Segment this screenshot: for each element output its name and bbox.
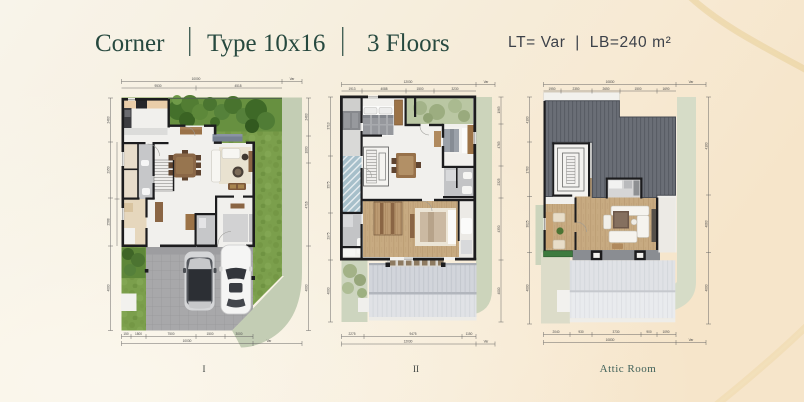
svg-text:10830: 10830 — [606, 80, 615, 84]
svg-text:10030: 10030 — [183, 339, 192, 343]
svg-text:2588: 2588 — [106, 218, 110, 225]
svg-text:12030: 12030 — [404, 80, 413, 84]
svg-text:4100: 4100 — [525, 116, 529, 123]
svg-text:1690: 1690 — [662, 87, 669, 91]
svg-text:4100: 4100 — [704, 142, 708, 149]
svg-text:1000: 1000 — [304, 146, 308, 153]
svg-text:1090: 1090 — [662, 330, 669, 334]
svg-text:1150: 1150 — [466, 332, 473, 336]
svg-text:1500: 1500 — [416, 87, 423, 91]
svg-text:4000: 4000 — [525, 284, 529, 291]
svg-text:3025: 3025 — [525, 220, 529, 227]
svg-text:2325: 2325 — [497, 178, 501, 185]
svg-text:1950: 1950 — [548, 87, 555, 91]
svg-text:Type 10x16: Type 10x16 — [207, 30, 325, 57]
svg-text:2950: 2950 — [106, 166, 110, 173]
svg-text:I: I — [203, 364, 206, 374]
svg-text:Corner: Corner — [95, 30, 165, 57]
svg-text:2650: 2650 — [602, 87, 609, 91]
svg-text:Attic Room: Attic Room — [600, 363, 657, 375]
svg-text:9475: 9475 — [409, 332, 416, 336]
svg-text:4000: 4000 — [106, 284, 110, 291]
svg-text:10000: 10000 — [192, 77, 201, 81]
svg-text:1500: 1500 — [206, 332, 213, 336]
svg-text:1800: 1800 — [135, 332, 142, 336]
svg-text:2275: 2275 — [348, 332, 355, 336]
svg-text:LT= Var | LB=240 m²: LT= Var | LB=240 m² — [508, 34, 671, 51]
svg-text:7500: 7500 — [167, 332, 174, 336]
svg-text:4088: 4088 — [380, 87, 387, 91]
svg-text:9530: 9530 — [154, 84, 161, 88]
svg-text:4350: 4350 — [497, 225, 501, 232]
svg-text:1913: 1913 — [348, 87, 355, 91]
svg-text:3713: 3713 — [326, 122, 330, 129]
svg-text:150: 150 — [123, 332, 129, 336]
svg-text:2463: 2463 — [106, 116, 110, 123]
svg-text:12030: 12030 — [404, 340, 413, 344]
svg-text:4000: 4000 — [304, 284, 308, 291]
svg-text:1963: 1963 — [497, 106, 501, 113]
svg-text:1763: 1763 — [525, 166, 529, 173]
svg-text:900: 900 — [646, 330, 652, 334]
svg-text:4763: 4763 — [497, 141, 501, 148]
svg-text:II: II — [413, 364, 419, 374]
svg-text:2463: 2463 — [304, 113, 308, 120]
svg-text:3730: 3730 — [612, 330, 619, 334]
svg-text:4063: 4063 — [704, 220, 708, 227]
svg-text:930: 930 — [578, 330, 584, 334]
svg-text:4000: 4000 — [704, 284, 708, 291]
svg-text:2040: 2040 — [552, 330, 559, 334]
svg-text:4716: 4716 — [304, 201, 308, 208]
svg-text:10830: 10830 — [606, 338, 615, 342]
svg-text:4000: 4000 — [326, 287, 330, 294]
svg-text:3 Floors: 3 Floors — [367, 30, 450, 57]
svg-text:3000: 3000 — [235, 332, 242, 336]
svg-text:3575: 3575 — [326, 181, 330, 188]
svg-text:3230: 3230 — [451, 87, 458, 91]
svg-text:4000: 4000 — [497, 287, 501, 294]
svg-text:2975: 2975 — [326, 232, 330, 239]
svg-text:1500: 1500 — [634, 87, 641, 91]
svg-text:2350: 2350 — [572, 87, 579, 91]
svg-text:4518: 4518 — [234, 84, 241, 88]
